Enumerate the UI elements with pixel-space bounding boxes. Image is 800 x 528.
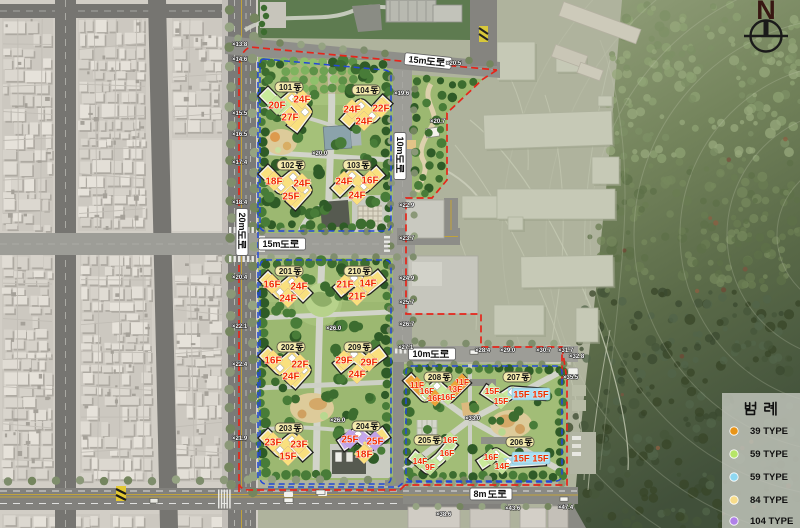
svg-text:20m: 20m (237, 212, 247, 230)
svg-text:15F 15F: 15F 15F (513, 454, 549, 465)
svg-text:×13.8: ×13.8 (232, 42, 248, 48)
svg-text:15F: 15F (485, 386, 500, 396)
svg-text:24F: 24F (290, 282, 307, 293)
svg-text:21F: 21F (348, 292, 365, 303)
svg-text:208: 208 (428, 373, 442, 382)
svg-text:201: 201 (279, 267, 293, 276)
svg-text:101: 101 (279, 83, 293, 92)
svg-text:×22.9: ×22.9 (399, 203, 415, 209)
svg-text:×14.6: ×14.6 (232, 57, 248, 63)
svg-text:16F: 16F (443, 435, 458, 445)
svg-text:×28.4: ×28.4 (475, 348, 491, 354)
svg-text:20F: 20F (268, 101, 285, 112)
svg-text:×30.7: ×30.7 (536, 348, 552, 354)
svg-text:×43.6: ×43.6 (505, 506, 521, 512)
svg-text:22F: 22F (372, 104, 389, 115)
svg-text:27F: 27F (281, 113, 298, 124)
svg-text:15F: 15F (494, 396, 509, 406)
svg-text:16F: 16F (263, 280, 280, 291)
svg-text:209: 209 (348, 343, 362, 352)
svg-text:25F: 25F (366, 437, 383, 448)
svg-text:29F: 29F (360, 358, 377, 369)
svg-text:×20.7: ×20.7 (430, 119, 446, 125)
svg-text:24F: 24F (348, 191, 365, 202)
svg-text:102: 102 (281, 161, 295, 170)
svg-text:×23.7: ×23.7 (399, 236, 415, 242)
svg-text:15F: 15F (279, 452, 296, 463)
svg-text:25F: 25F (282, 192, 299, 203)
svg-text:16F: 16F (361, 176, 378, 187)
svg-text:×15.5: ×15.5 (232, 111, 248, 117)
svg-text:204: 204 (356, 422, 370, 431)
svg-text:14F: 14F (359, 279, 376, 290)
svg-text:207: 207 (507, 373, 521, 382)
svg-text:23F: 23F (264, 438, 281, 449)
svg-text:39 TYPE: 39 TYPE (750, 426, 788, 437)
svg-text:24F: 24F (348, 370, 365, 381)
svg-text:×17.4: ×17.4 (232, 160, 248, 166)
svg-text:×21.9: ×21.9 (232, 436, 248, 442)
svg-text:×32.8: ×32.8 (569, 354, 585, 360)
svg-text:N: N (756, 0, 776, 25)
svg-text:×22.4: ×22.4 (232, 362, 248, 368)
svg-text:24F: 24F (343, 105, 360, 116)
svg-text:15m: 15m (408, 54, 427, 66)
svg-text:×29.0: ×29.0 (500, 348, 516, 354)
svg-text:×33.0: ×33.0 (465, 416, 481, 422)
svg-text:16F: 16F (441, 392, 456, 402)
svg-text:×22.1: ×22.1 (232, 324, 248, 330)
svg-text:×35.5: ×35.5 (563, 375, 579, 381)
svg-text:104: 104 (356, 86, 370, 95)
svg-text:×26.0: ×26.0 (330, 418, 346, 424)
svg-text:103: 103 (347, 161, 361, 170)
svg-text:24F: 24F (335, 177, 352, 188)
svg-text:203: 203 (279, 424, 293, 433)
svg-text:×20.4: ×20.4 (232, 275, 248, 281)
svg-text:16F: 16F (440, 448, 455, 458)
svg-text:16F: 16F (264, 356, 281, 367)
svg-text:×27.1: ×27.1 (398, 345, 414, 351)
svg-text:×20.0: ×20.0 (312, 151, 328, 157)
svg-text:×18.4: ×18.4 (232, 200, 248, 206)
svg-text:×38.6: ×38.6 (436, 512, 452, 518)
svg-text:24F: 24F (293, 179, 310, 190)
svg-text:×19.6: ×19.6 (394, 91, 410, 97)
svg-text:9F: 9F (425, 462, 435, 472)
svg-text:×16.5: ×16.5 (232, 132, 248, 138)
svg-text:202: 202 (281, 343, 295, 352)
svg-text:×25.7: ×25.7 (399, 300, 415, 306)
svg-text:18F: 18F (355, 450, 372, 461)
svg-text:×20.5: ×20.5 (446, 61, 462, 67)
svg-text:24F: 24F (293, 95, 310, 106)
svg-text:206: 206 (510, 438, 524, 447)
svg-text:15F 15F: 15F 15F (513, 390, 549, 401)
svg-text:15m: 15m (262, 239, 280, 249)
svg-text:205: 205 (418, 436, 432, 445)
svg-text:10m: 10m (412, 349, 430, 359)
svg-text:59 TYPE: 59 TYPE (750, 472, 788, 483)
svg-text:×26.0: ×26.0 (326, 326, 342, 332)
svg-text:25F: 25F (341, 435, 358, 446)
svg-text:×47.4: ×47.4 (558, 505, 574, 511)
svg-text:84 TYPE: 84 TYPE (750, 495, 788, 506)
svg-text:18F: 18F (265, 177, 282, 188)
svg-text:21F: 21F (336, 280, 353, 291)
svg-text:×26.7: ×26.7 (399, 322, 415, 328)
svg-text:24F: 24F (282, 372, 299, 383)
svg-text:×24.9: ×24.9 (399, 276, 415, 282)
svg-text:24F: 24F (279, 294, 296, 305)
svg-text:14F: 14F (495, 461, 510, 471)
svg-text:210: 210 (348, 267, 362, 276)
svg-text:24F: 24F (355, 117, 372, 128)
svg-text:29F: 29F (335, 356, 352, 367)
svg-text:59 TYPE: 59 TYPE (750, 449, 788, 460)
svg-text:104 TYPE: 104 TYPE (750, 516, 793, 527)
svg-text:23F: 23F (290, 440, 307, 451)
svg-text:10m: 10m (395, 136, 405, 154)
svg-text:8m: 8m (473, 489, 486, 499)
